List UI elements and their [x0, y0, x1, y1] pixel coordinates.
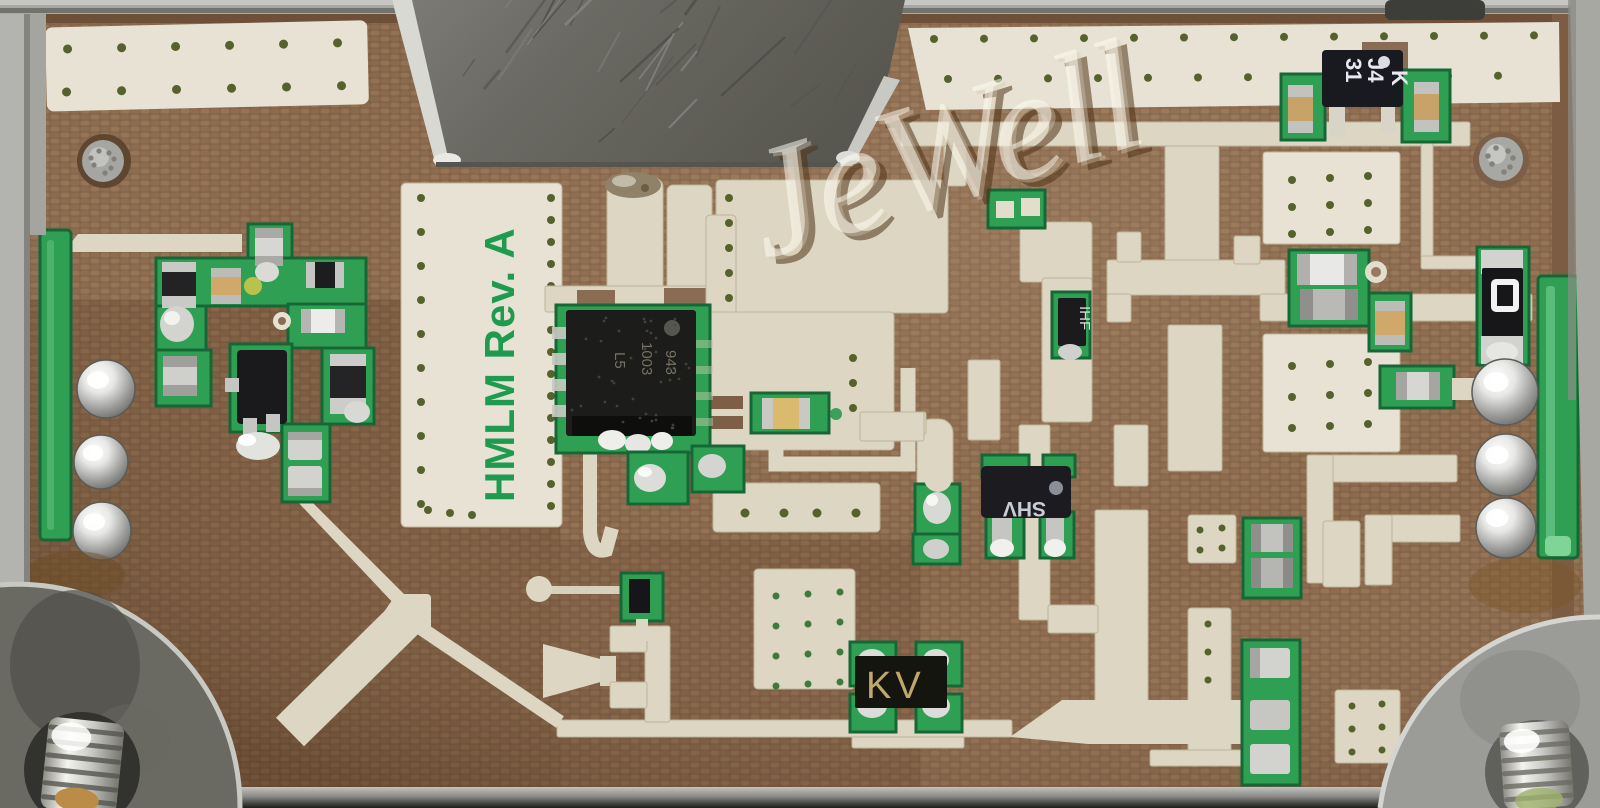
svg-text:SHV: SHV [1003, 497, 1046, 520]
svg-text:KV: KV [866, 665, 925, 707]
svg-text:L5: L5 [611, 352, 628, 369]
svg-text:1003: 1003 [638, 342, 655, 375]
svg-text:HMLM Rev. A: HMLM Rev. A [476, 227, 523, 502]
svg-text:943: 943 [662, 350, 679, 375]
svg-text:IHF: IHF [1076, 306, 1093, 330]
svg-text:K: K [1387, 70, 1412, 86]
svg-text:31: 31 [1341, 58, 1366, 82]
